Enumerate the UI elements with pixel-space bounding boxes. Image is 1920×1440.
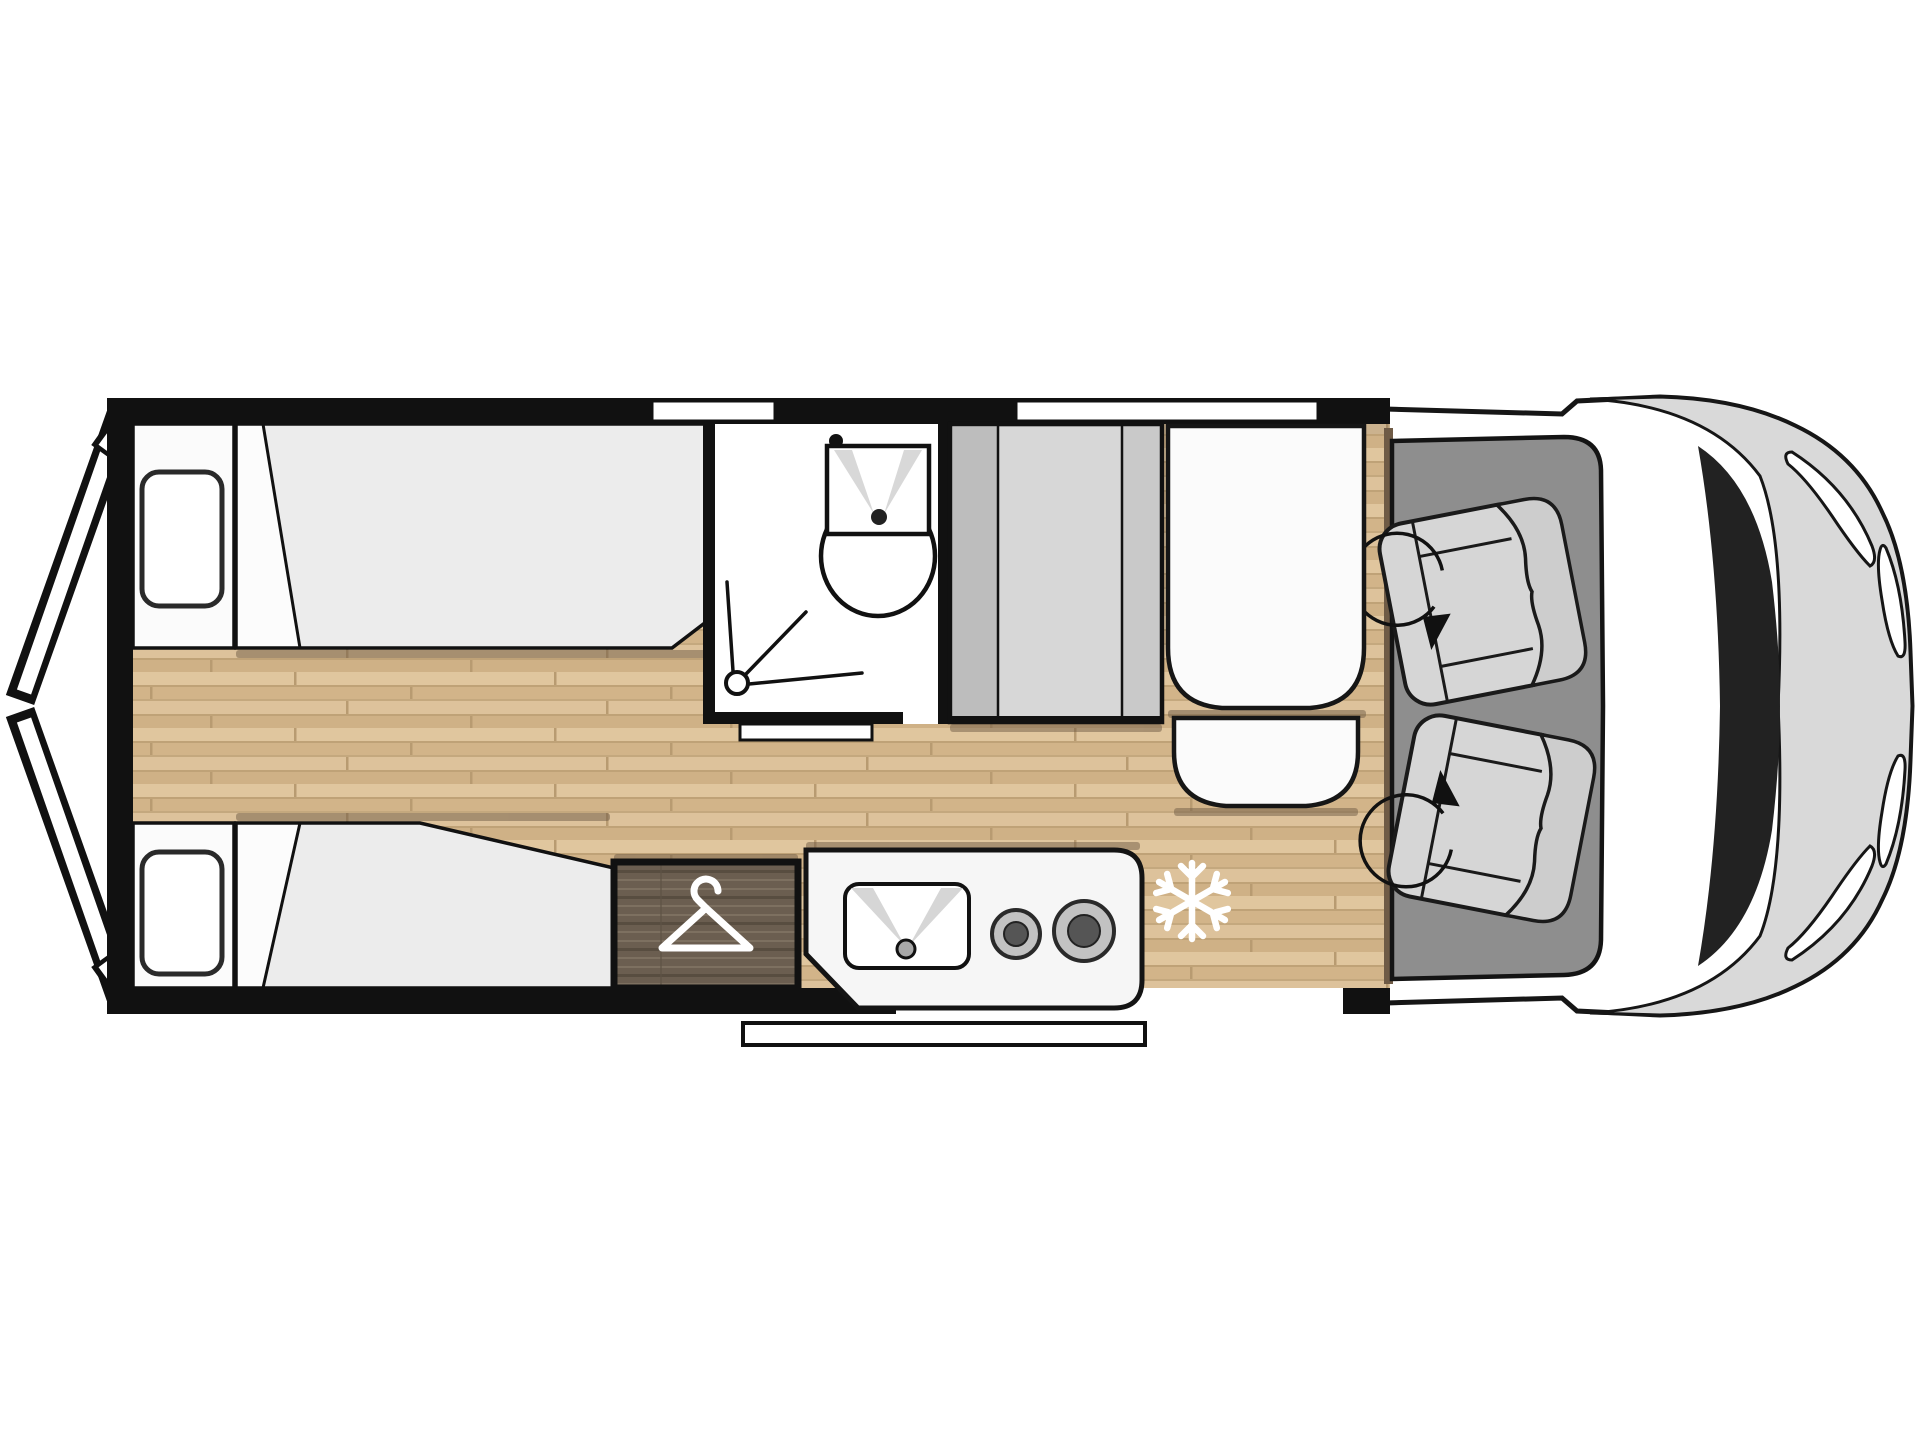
washbasin-icon xyxy=(821,434,935,616)
wall-bottom-stub xyxy=(1343,988,1390,1014)
rear-door-top-panel xyxy=(24,420,119,692)
bench-seat-back xyxy=(1168,426,1364,708)
bathroom-wall-left xyxy=(703,424,715,724)
bench-seat xyxy=(1168,426,1364,806)
pillow xyxy=(142,472,222,606)
rear-door-bottom-panel xyxy=(24,720,119,992)
wardrobe xyxy=(614,862,798,988)
wall-rear xyxy=(107,398,133,1014)
kitchen-unit xyxy=(806,850,1142,1008)
window-bathroom xyxy=(652,401,775,421)
pillow xyxy=(142,852,222,974)
mattress xyxy=(236,424,706,648)
floorplan-canvas xyxy=(0,0,1920,1440)
bench-seat-cushion xyxy=(1174,718,1358,806)
twin-bed-top xyxy=(133,424,706,648)
window-lounge xyxy=(1016,401,1318,421)
entry-step xyxy=(743,1023,1145,1045)
bathroom xyxy=(703,424,950,740)
wall-bottom xyxy=(107,988,896,1014)
bathroom-wall-bottom xyxy=(703,712,903,724)
sideboard-cabinet xyxy=(950,424,1162,722)
floorplan-drawing xyxy=(0,0,1920,1440)
kitchen-sink-icon xyxy=(845,884,969,968)
bathroom-sliding-door xyxy=(740,724,872,740)
